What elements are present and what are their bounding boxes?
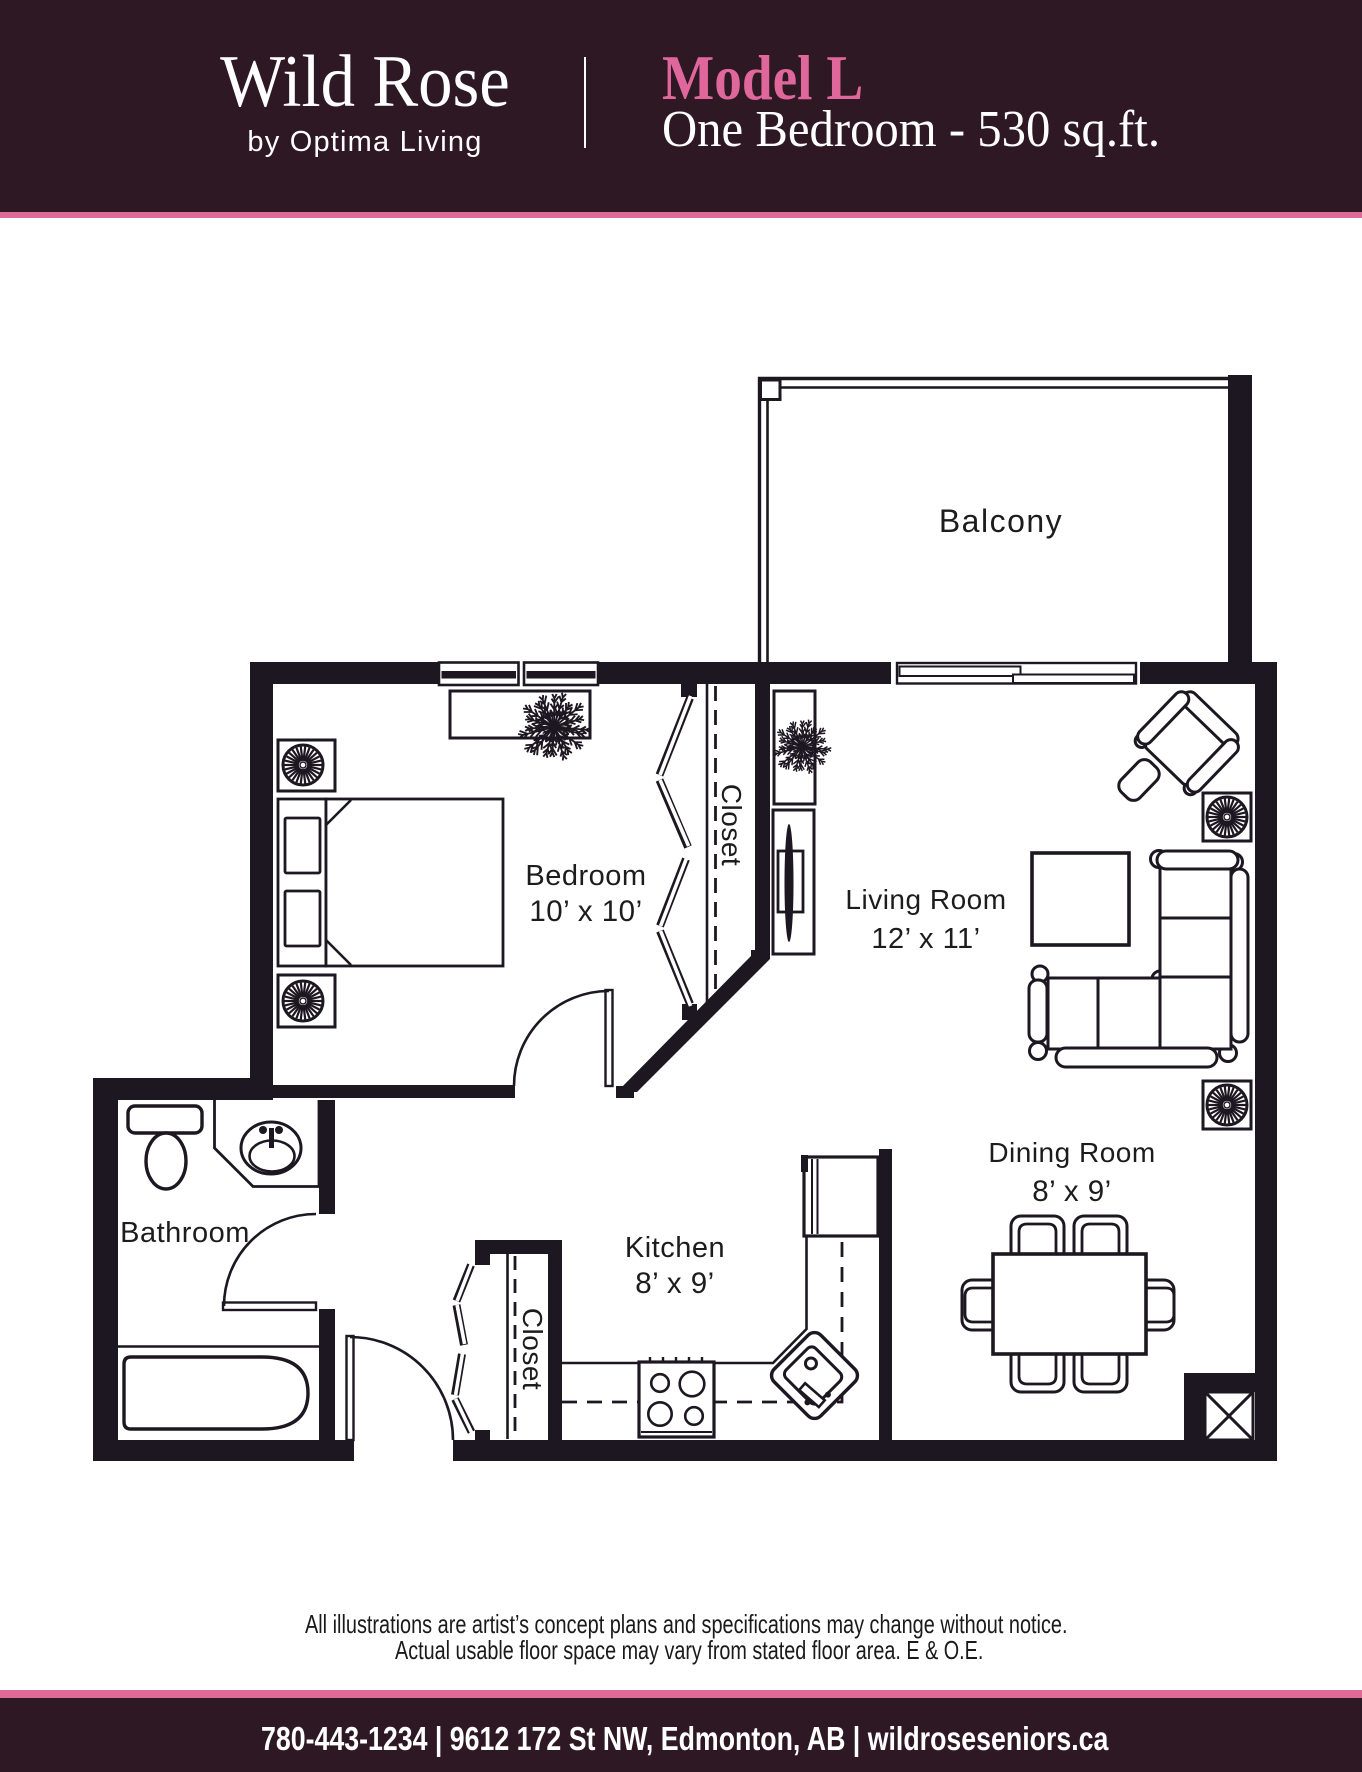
svg-text:Living Room: Living Room [845, 884, 1006, 915]
svg-text:10’ x 10’: 10’ x 10’ [529, 895, 642, 928]
svg-text:Closet: Closet [517, 1308, 548, 1390]
svg-text:8’ x 9’: 8’ x 9’ [635, 1267, 714, 1300]
svg-text:Closet: Closet [716, 784, 747, 866]
svg-text:Bedroom: Bedroom [525, 860, 646, 892]
svg-text:8’ x 9’: 8’ x 9’ [1032, 1175, 1111, 1208]
svg-text:Balcony: Balcony [939, 503, 1063, 539]
svg-text:Kitchen: Kitchen [625, 1232, 725, 1264]
svg-text:Dining Room: Dining Room [988, 1137, 1155, 1168]
svg-text:12’ x 11’: 12’ x 11’ [871, 923, 980, 955]
svg-text:Bathroom: Bathroom [120, 1217, 250, 1249]
